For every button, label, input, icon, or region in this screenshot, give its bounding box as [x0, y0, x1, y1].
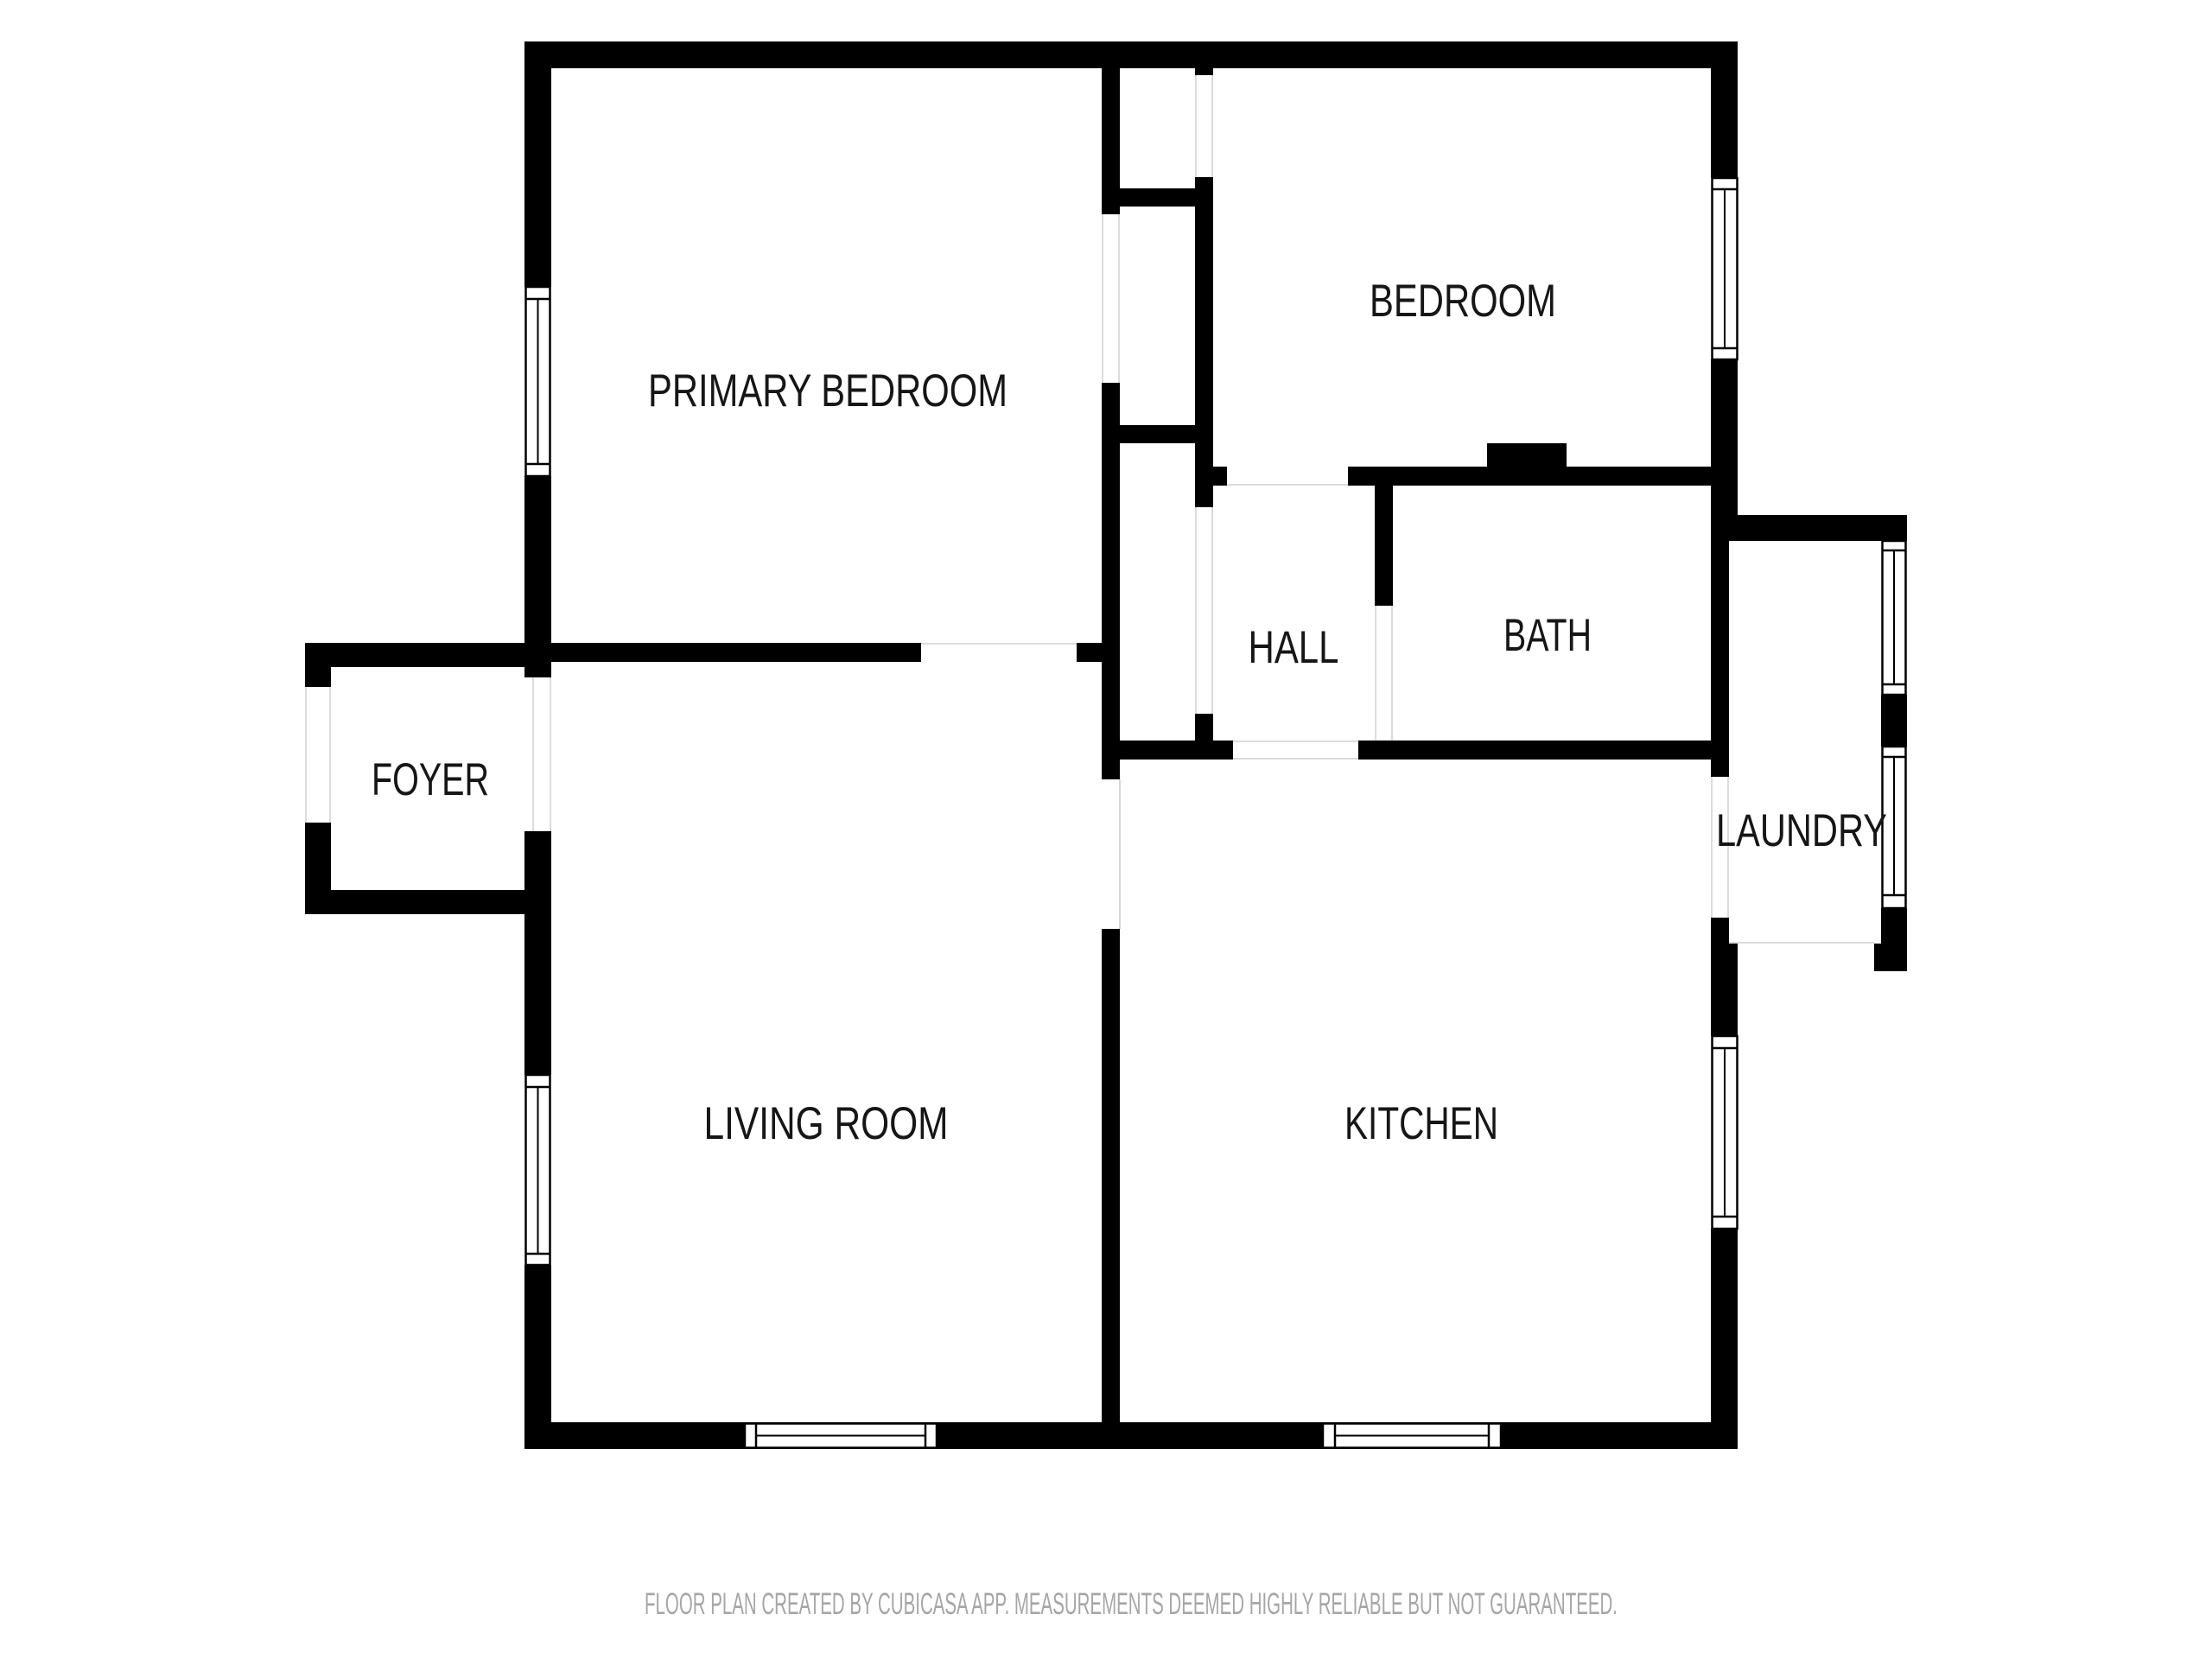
svg-text:FLOOR PLAN CREATED BY CUBICASA: FLOOR PLAN CREATED BY CUBICASA APP. MEAS…	[645, 1587, 1618, 1621]
svg-text:LAUNDRY: LAUNDRY	[1716, 805, 1887, 856]
svg-text:KITCHEN: KITCHEN	[1344, 1098, 1498, 1149]
svg-text:HALL: HALL	[1249, 622, 1339, 673]
svg-text:FOYER: FOYER	[372, 754, 489, 805]
svg-text:PRIMARY BEDROOM: PRIMARY BEDROOM	[648, 365, 1007, 416]
svg-text:LIVING ROOM: LIVING ROOM	[704, 1098, 949, 1149]
svg-text:BATH: BATH	[1503, 610, 1592, 661]
svg-text:BEDROOM: BEDROOM	[1370, 276, 1556, 327]
